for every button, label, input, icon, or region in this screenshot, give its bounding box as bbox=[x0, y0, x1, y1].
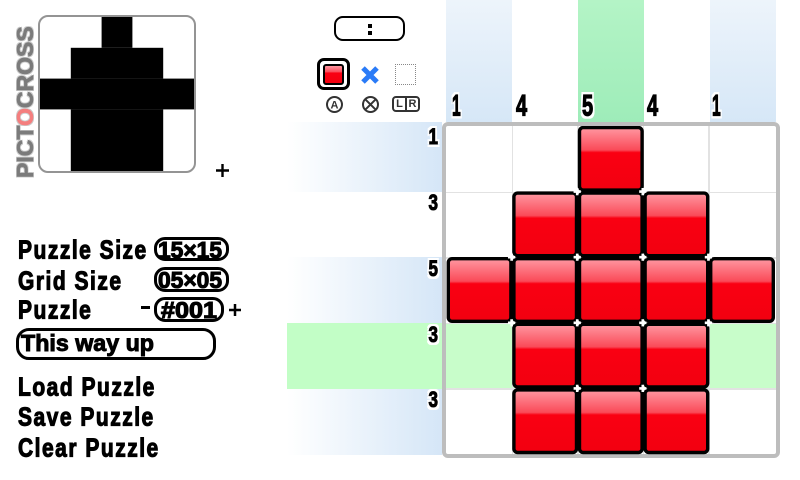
svg-text:#001: #001 bbox=[161, 298, 217, 321]
svg-text:15×15: 15×15 bbox=[158, 238, 222, 261]
svg-text:05×05: 05×05 bbox=[158, 268, 222, 291]
svg-text:This way up: This way up bbox=[21, 331, 154, 356]
svg-text:A: A bbox=[331, 100, 339, 112]
